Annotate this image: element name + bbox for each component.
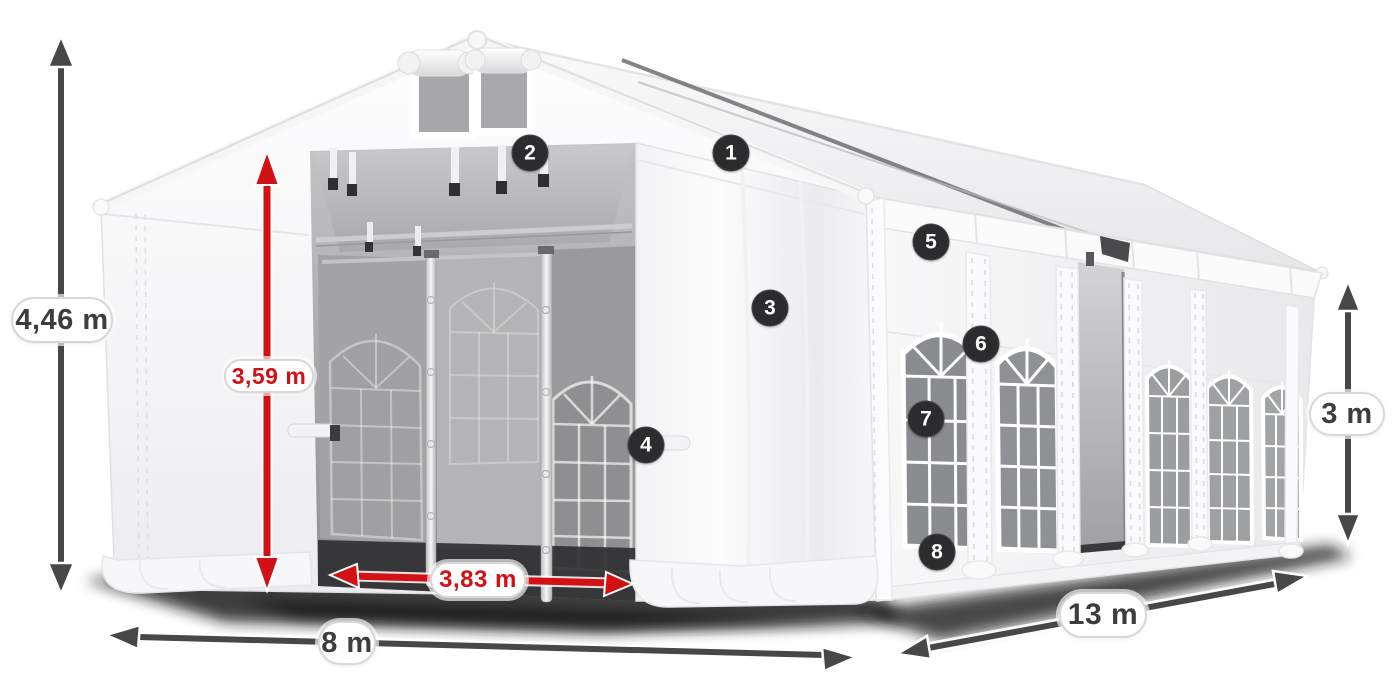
callout-hotspot-7[interactable]: 7	[908, 401, 945, 438]
front-door-flap	[630, 143, 878, 607]
dimension-label-total-height: 4,46 m	[11, 297, 113, 343]
side-window	[1147, 360, 1192, 546]
dimension-label-length: 13 m	[1059, 592, 1147, 638]
callout-hotspot-3[interactable]: 3	[752, 290, 789, 327]
ridge-cap	[468, 31, 486, 49]
callout-hotspot-4[interactable]: 4	[628, 427, 665, 464]
side-door	[1078, 236, 1130, 553]
tent-illustration	[0, 0, 1400, 700]
callout-hotspot-1[interactable]: 1	[713, 135, 750, 172]
callout-hotspot-2[interactable]: 2	[512, 135, 549, 172]
callout-hotspot-5[interactable]: 5	[913, 224, 950, 261]
tent-dimension-diagram: 4,46 m 3,59 m 3,83 m 8 m 13 m 3 m 1 2 3 …	[0, 0, 1400, 700]
side-window	[997, 338, 1059, 551]
side-window	[1207, 370, 1252, 543]
callout-hotspot-8[interactable]: 8	[919, 534, 956, 571]
dimension-label-entrance-height: 3,59 m	[224, 359, 314, 393]
interior-window	[553, 376, 631, 572]
callout-hotspot-6[interactable]: 6	[963, 326, 1000, 363]
roof-vent-right	[465, 48, 541, 132]
width-arrow	[106, 625, 856, 671]
dimension-label-side-height: 3 m	[1309, 392, 1385, 436]
dimension-label-width: 8 m	[318, 621, 376, 665]
dimension-label-entrance-width: 3,83 m	[430, 562, 526, 598]
front-entrance	[310, 142, 636, 602]
